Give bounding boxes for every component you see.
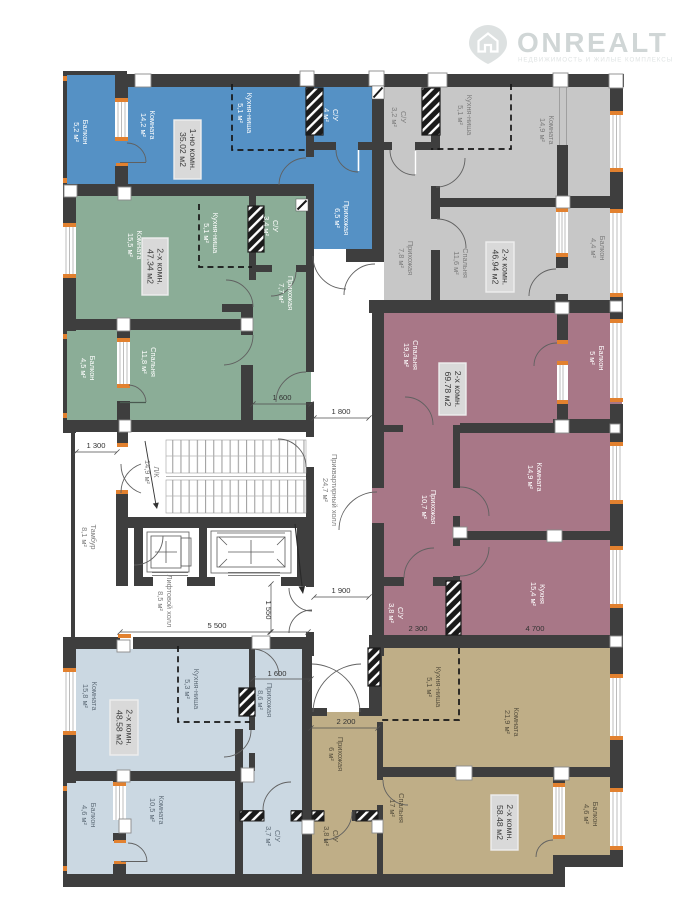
svg-text:Тамбур: Тамбур: [89, 524, 98, 549]
svg-text:2-х комн.: 2-х комн.: [501, 249, 511, 285]
svg-text:69.78 м2: 69.78 м2: [443, 372, 453, 407]
svg-text:5 м²: 5 м²: [588, 351, 597, 365]
svg-text:Комната: Комната: [512, 708, 521, 738]
svg-text:Лифтовой холл: Лифтовой холл: [165, 575, 174, 628]
svg-text:Прихожая: Прихожая: [342, 201, 351, 235]
svg-text:5 500: 5 500: [207, 621, 226, 630]
svg-text:15,4 м²: 15,4 м²: [529, 582, 538, 607]
svg-text:2-х комн.: 2-х комн.: [505, 804, 515, 840]
svg-text:3,2 м²: 3,2 м²: [390, 107, 399, 127]
svg-text:Кухня-ниша: Кухня-ниша: [192, 669, 201, 710]
svg-text:Балкон: Балкон: [89, 803, 98, 828]
svg-text:Кухня-ниша: Кухня-ниша: [245, 93, 254, 134]
svg-text:ONREALT: ONREALT: [517, 27, 668, 58]
svg-text:5,1 м²: 5,1 м²: [202, 223, 211, 243]
svg-text:1 600: 1 600: [272, 393, 291, 402]
svg-text:11,8 м²: 11,8 м²: [140, 350, 149, 374]
svg-text:21,9 м²: 21,9 м²: [503, 710, 512, 735]
svg-text:Кухня-ниша: Кухня-ниша: [465, 95, 474, 136]
svg-text:Спальня: Спальня: [397, 793, 406, 823]
svg-text:Комната: Комната: [535, 463, 544, 493]
svg-text:15,5 м²: 15,5 м²: [126, 233, 135, 258]
svg-text:Прихожая: Прихожая: [286, 276, 295, 310]
svg-text:Комната: Комната: [547, 116, 556, 146]
svg-text:НЕДВИЖИМОСТЬ И ЖИЛЫЕ КОМПЛЕКСЫ: НЕДВИЖИМОСТЬ И ЖИЛЫЕ КОМПЛЕКСЫ: [518, 57, 673, 64]
svg-text:35.02 м2: 35.02 м2: [178, 132, 188, 167]
svg-text:Балкон: Балкон: [591, 802, 600, 827]
svg-text:Прихожая: Прихожая: [336, 737, 345, 771]
svg-text:Спальня: Спальня: [411, 340, 420, 370]
svg-text:1 550: 1 550: [264, 600, 273, 619]
svg-text:Приквартирный холл: Приквартирный холл: [330, 454, 339, 526]
svg-text:4,4 м²: 4,4 м²: [589, 238, 598, 258]
svg-text:3,4 м²: 3,4 м²: [262, 216, 271, 236]
svg-text:5,1 м²: 5,1 м²: [425, 677, 434, 697]
svg-text:1 900: 1 900: [331, 586, 350, 595]
svg-text:Спальня: Спальня: [461, 248, 470, 278]
svg-text:Комната: Комната: [157, 796, 166, 826]
svg-text:1 600: 1 600: [267, 669, 286, 678]
svg-text:2-х комн.: 2-х комн.: [453, 371, 463, 407]
svg-text:4 м²: 4 м²: [322, 108, 331, 122]
svg-text:С/У: С/У: [271, 220, 280, 232]
svg-text:С/У: С/У: [331, 830, 340, 842]
svg-text:Балкон: Балкон: [597, 346, 606, 371]
svg-text:Балкон: Балкон: [88, 356, 97, 381]
svg-text:Прихожая: Прихожая: [406, 241, 415, 275]
svg-text:Балкон: Балкон: [81, 120, 90, 145]
svg-text:5,1 м²: 5,1 м²: [236, 103, 245, 123]
svg-text:С/У: С/У: [273, 830, 282, 842]
svg-text:47.34 м2: 47.34 м2: [146, 249, 156, 284]
svg-text:Прихожая: Прихожая: [429, 490, 438, 524]
svg-text:2-х комн.: 2-х комн.: [156, 248, 166, 284]
svg-text:2 300: 2 300: [408, 624, 427, 633]
svg-text:24,7 м²: 24,7 м²: [321, 478, 330, 503]
svg-text:5,2 м²: 5,2 м²: [72, 122, 81, 142]
svg-text:15,8 м²: 15,8 м²: [81, 684, 90, 709]
svg-text:46.94 м2: 46.94 м2: [491, 250, 501, 285]
svg-text:С/У: С/У: [399, 111, 408, 123]
svg-text:Прихожая: Прихожая: [265, 683, 274, 717]
svg-text:4,5 м²: 4,5 м²: [79, 358, 88, 378]
svg-text:1-но комн.: 1-но комн.: [188, 129, 198, 171]
svg-text:Комната: Комната: [90, 682, 99, 712]
svg-text:Кухня-ниша: Кухня-ниша: [211, 213, 220, 254]
svg-text:2 200: 2 200: [336, 717, 355, 726]
svg-text:10,5 м²: 10,5 м²: [148, 798, 157, 823]
svg-text:4,6 м²: 4,6 м²: [582, 804, 591, 824]
svg-text:Кухня-ниша: Кухня-ниша: [434, 667, 443, 708]
svg-text:48.58 м2: 48.58 м2: [115, 710, 125, 745]
svg-text:11,6 м²: 11,6 м²: [452, 251, 461, 275]
svg-text:6,5 м²: 6,5 м²: [333, 208, 342, 228]
svg-text:5,3 м²: 5,3 м²: [183, 679, 192, 699]
svg-text:Л/К: Л/К: [152, 466, 161, 478]
svg-text:3,7 м²: 3,7 м²: [264, 826, 273, 846]
svg-text:6 м²: 6 м²: [327, 747, 336, 761]
svg-text:17 м²: 17 м²: [388, 799, 397, 817]
svg-text:8,6 м²: 8,6 м²: [256, 690, 265, 710]
svg-text:8,5 м²: 8,5 м²: [156, 591, 165, 611]
svg-text:С/У: С/У: [396, 607, 405, 619]
svg-text:Комната: Комната: [148, 111, 157, 141]
svg-text:3,8 м²: 3,8 м²: [387, 603, 396, 623]
svg-text:7,7 м²: 7,7 м²: [277, 283, 286, 303]
svg-text:3,8 м²: 3,8 м²: [322, 826, 331, 846]
svg-text:1 300: 1 300: [86, 441, 105, 450]
svg-text:14,9 м²: 14,9 м²: [526, 465, 535, 490]
svg-text:4 700: 4 700: [525, 624, 544, 633]
svg-text:58.48 м2: 58.48 м2: [495, 805, 505, 840]
svg-text:14,9 м²: 14,9 м²: [143, 460, 152, 485]
svg-text:14,2 м²: 14,2 м²: [139, 113, 148, 138]
svg-text:14,9 м²: 14,9 м²: [538, 118, 547, 143]
svg-text:5,1 м²: 5,1 м²: [456, 105, 465, 125]
svg-text:Балкон: Балкон: [598, 236, 607, 261]
svg-text:1 800: 1 800: [331, 407, 350, 416]
svg-text:2-х комн.: 2-х комн.: [125, 709, 135, 745]
svg-text:4,6 м²: 4,6 м²: [80, 805, 89, 825]
svg-text:Кухня: Кухня: [538, 584, 547, 604]
svg-text:19,3 м²: 19,3 м²: [402, 343, 411, 368]
svg-text:7,8 м²: 7,8 м²: [397, 248, 406, 268]
svg-text:10,7 м²: 10,7 м²: [420, 495, 429, 520]
svg-text:Спальня: Спальня: [149, 347, 158, 377]
svg-text:8,1 м²: 8,1 м²: [80, 527, 89, 547]
svg-text:С/У: С/У: [331, 109, 340, 121]
